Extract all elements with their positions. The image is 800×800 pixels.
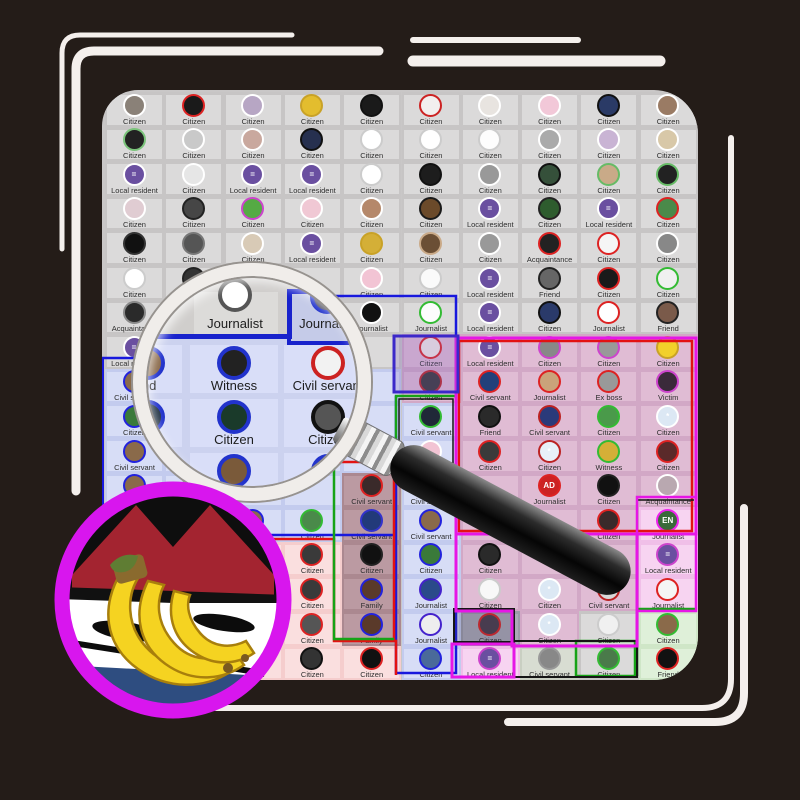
suspect-cell[interactable]: Citizen	[639, 334, 698, 369]
cell-role-label: Citizen	[631, 255, 698, 264]
avatar-icon	[360, 128, 383, 151]
avatar-icon: *	[538, 613, 561, 636]
avatar-icon	[597, 647, 620, 670]
avatar-icon	[419, 232, 442, 255]
avatar-icon: =	[478, 267, 501, 290]
cell-role-label: Friend	[631, 324, 698, 333]
avatar-icon	[656, 440, 679, 463]
avatar-icon	[419, 336, 442, 359]
game-screen: CitizenCitizenCitizenCitizenCitizenCitiz…	[0, 0, 800, 800]
cell-role-label: Civil servant	[394, 532, 469, 541]
avatar-icon	[597, 509, 620, 532]
avatar-icon: AD	[538, 474, 561, 497]
avatar-icon: =	[597, 197, 620, 220]
avatar-icon	[123, 94, 146, 117]
suspect-cell[interactable]: Citizen	[639, 127, 698, 162]
avatar-icon	[360, 267, 383, 290]
avatar-icon	[538, 405, 561, 428]
suspect-cell[interactable]: Citizen	[639, 265, 698, 300]
avatar-icon: E	[597, 301, 620, 324]
suspect-cell[interactable]: Acquaintance	[639, 473, 698, 508]
avatar-icon	[300, 509, 323, 532]
avatar-icon: *	[538, 440, 561, 463]
avatar-icon	[360, 578, 383, 601]
cell-role-label: Citizen	[631, 428, 698, 437]
cell-role-label: Journalist	[631, 532, 698, 541]
avatar-icon	[360, 163, 383, 186]
avatar-icon	[123, 197, 146, 220]
avatar-icon	[656, 578, 679, 601]
suspect-cell[interactable]: ENJournalist	[639, 507, 698, 542]
avatar-icon	[360, 474, 383, 497]
avatar-icon: =	[656, 543, 679, 566]
avatar-icon	[597, 94, 620, 117]
avatar-icon	[597, 613, 620, 636]
avatar-icon	[419, 613, 442, 636]
avatar-icon	[419, 647, 442, 670]
suspect-portrait	[52, 479, 294, 721]
cell-role-label: Civil servant	[102, 463, 172, 472]
avatar-icon	[419, 267, 442, 290]
avatar-icon: =	[123, 163, 146, 186]
suspect-cell[interactable]: Citizen	[639, 230, 698, 265]
avatar-icon	[123, 440, 146, 463]
avatar-icon	[597, 163, 620, 186]
avatar-icon	[538, 647, 561, 670]
avatar-icon: =	[478, 301, 501, 324]
avatar-icon	[123, 301, 146, 324]
avatar-icon	[123, 232, 146, 255]
avatar-icon: =	[300, 163, 323, 186]
avatar-icon	[419, 128, 442, 151]
cell-role-label: Citizen	[453, 566, 528, 575]
avatar-icon: *	[656, 405, 679, 428]
suspect-cell[interactable]: Victim	[639, 369, 698, 404]
avatar-icon	[597, 232, 620, 255]
suspect-cell[interactable]: Citizen	[639, 438, 698, 473]
avatar-icon: EN	[656, 509, 679, 532]
avatar-icon	[360, 197, 383, 220]
suspect-cell[interactable]: Journalist	[639, 576, 698, 611]
avatar-icon	[123, 128, 146, 151]
suspect-cell[interactable]: Citizen	[639, 611, 698, 646]
avatar-icon: =	[478, 647, 501, 670]
avatar-icon	[538, 94, 561, 117]
avatar-icon: =	[478, 197, 501, 220]
avatar-icon	[538, 336, 561, 359]
avatar-icon	[241, 232, 264, 255]
avatar-icon	[419, 94, 442, 117]
avatar-icon	[241, 94, 264, 117]
avatar-icon	[419, 301, 442, 324]
avatar-icon	[300, 613, 323, 636]
avatar-icon	[656, 613, 679, 636]
avatar-icon	[419, 163, 442, 186]
avatar-icon	[538, 128, 561, 151]
avatar-icon	[360, 232, 383, 255]
cell-role-label: Citizen	[631, 186, 698, 195]
avatar-icon	[597, 440, 620, 463]
avatar-icon	[360, 647, 383, 670]
suspect-cell[interactable]: Citizen	[639, 161, 698, 196]
avatar-icon	[656, 336, 679, 359]
avatar-icon	[538, 370, 561, 393]
avatar-icon	[300, 94, 323, 117]
avatar-icon	[656, 163, 679, 186]
cell-role-label: Citizen	[631, 117, 698, 126]
cell-role-label: Friend	[631, 670, 698, 679]
avatar-icon	[182, 232, 205, 255]
avatar-icon	[538, 267, 561, 290]
avatar-icon	[360, 301, 383, 324]
suspect-cell[interactable]: =Local resident	[639, 542, 698, 577]
avatar-icon	[478, 440, 501, 463]
avatar-icon	[360, 613, 383, 636]
avatar-icon	[478, 94, 501, 117]
avatar-icon	[597, 267, 620, 290]
avatar-icon	[182, 197, 205, 220]
avatar-icon	[182, 94, 205, 117]
avatar-icon	[478, 163, 501, 186]
suspect-cell[interactable]: *Citizen	[639, 403, 698, 438]
avatar-icon	[538, 232, 561, 255]
cell-role-label: Citizen	[631, 220, 698, 229]
suspect-cell[interactable]: Friend	[639, 300, 698, 335]
avatar-icon: =	[241, 163, 264, 186]
avatar-icon	[182, 128, 205, 151]
cell-role-label: Victim	[631, 393, 698, 402]
avatar-icon	[538, 197, 561, 220]
avatar-icon	[538, 163, 561, 186]
avatar-icon	[419, 509, 442, 532]
cell-role-label: Citizen	[631, 636, 698, 645]
suspect-cell[interactable]: Citizen	[639, 196, 698, 231]
avatar-icon: *	[538, 578, 561, 601]
cell-role-label: Citizen	[631, 463, 698, 472]
avatar-icon	[360, 94, 383, 117]
cell-role-label: Citizen	[631, 290, 698, 299]
cell-role-label: Citizen	[631, 359, 698, 368]
avatar-icon	[597, 474, 620, 497]
avatar-icon	[538, 301, 561, 324]
avatar-icon	[419, 405, 442, 428]
suspect-cell[interactable]: Friend	[639, 646, 698, 680]
avatar-icon: =	[478, 336, 501, 359]
avatar-icon	[123, 267, 146, 290]
avatar-icon	[656, 232, 679, 255]
avatar-icon: =	[300, 232, 323, 255]
suspect-cell[interactable]: Citizen	[639, 92, 698, 127]
avatar-icon	[360, 543, 383, 566]
avatar-icon	[419, 578, 442, 601]
magnifier-ring	[133, 263, 371, 501]
avatar-icon	[597, 128, 620, 151]
avatar-icon	[478, 613, 501, 636]
avatar-icon	[182, 163, 205, 186]
cell-role-label: Citizen	[631, 151, 698, 160]
avatar-icon	[597, 405, 620, 428]
avatar-icon	[360, 509, 383, 532]
avatar-icon	[656, 94, 679, 117]
cell-role-label: Local resident	[631, 566, 698, 575]
avatar-icon	[597, 336, 620, 359]
avatar-icon	[656, 267, 679, 290]
cell-role-label: Journalist	[631, 601, 698, 610]
cell-role-label: Acquaintance	[631, 497, 698, 506]
